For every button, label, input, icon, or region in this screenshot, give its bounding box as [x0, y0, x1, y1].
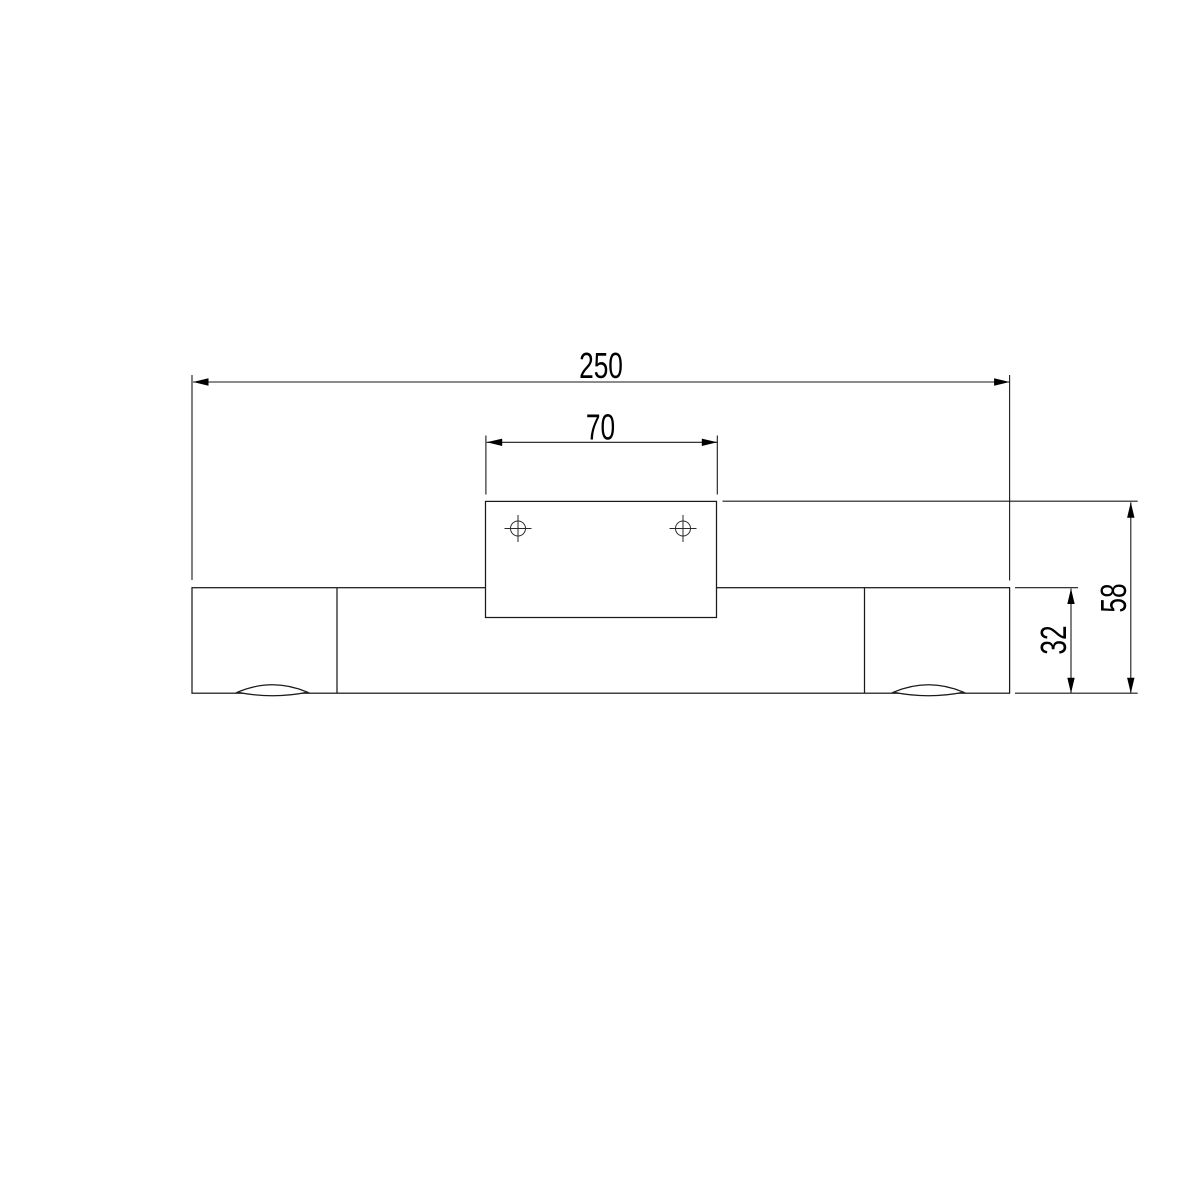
svg-text:58: 58: [1093, 583, 1134, 612]
svg-text:250: 250: [579, 345, 623, 386]
svg-text:32: 32: [1033, 625, 1074, 654]
svg-text:70: 70: [586, 406, 615, 447]
